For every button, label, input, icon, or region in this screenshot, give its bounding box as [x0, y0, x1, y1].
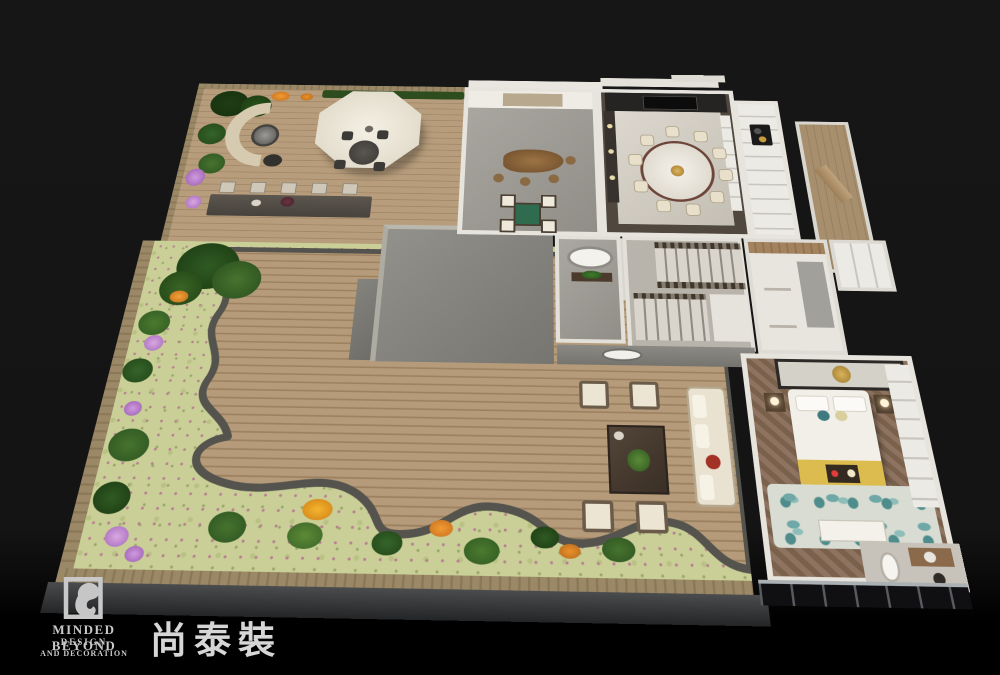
orange-flowers — [271, 91, 291, 100]
lounge-armchair — [629, 381, 660, 409]
utility-room — [829, 240, 897, 292]
roof-block — [370, 225, 554, 365]
bar-stool — [249, 182, 266, 193]
sofa-cushion — [699, 475, 715, 500]
bar-stool — [342, 183, 359, 194]
ottoman — [262, 154, 283, 167]
table-tray — [614, 431, 624, 440]
dining-chair — [693, 131, 708, 142]
bar-stool — [311, 183, 328, 194]
stair-hall — [622, 237, 756, 352]
patio-chair — [341, 131, 353, 140]
dining-room — [596, 89, 753, 239]
tv-screen — [643, 96, 699, 110]
dining-chair — [709, 191, 725, 203]
breakfast-tray — [825, 464, 860, 483]
dining-chair — [656, 200, 672, 212]
foyer-mirror — [567, 246, 614, 269]
cook-pot — [754, 128, 762, 134]
cooktop — [749, 124, 773, 145]
parapet-strip — [671, 75, 725, 83]
dining-chair — [640, 135, 655, 146]
orange-flowers — [300, 93, 314, 100]
table-centerpiece — [670, 165, 684, 176]
shrub — [602, 537, 636, 562]
tea-room — [457, 87, 602, 236]
sofa-cushion — [694, 424, 710, 448]
balcony-bench — [814, 165, 853, 203]
purple-flowers — [103, 526, 131, 547]
corridor-threshold — [748, 242, 826, 254]
sofa-cushion — [692, 395, 707, 418]
pillow — [832, 396, 868, 412]
bedside-lamp — [770, 397, 780, 405]
dining-chair — [665, 126, 680, 137]
brand-name-cn: 尚泰裝飾 — [150, 610, 322, 675]
stair-railing — [633, 293, 706, 300]
floorplan-3d — [42, 83, 965, 595]
shrub — [120, 358, 156, 383]
fern-plant — [196, 123, 228, 144]
bonsai-plant — [582, 271, 603, 279]
stair-railing — [657, 282, 746, 290]
tray-flower — [847, 469, 856, 477]
dining-chair — [633, 180, 648, 192]
stair-flight-upper — [655, 248, 745, 283]
table-plant — [627, 449, 651, 472]
sofa-pillow-red — [705, 455, 721, 470]
purple-flowers — [142, 335, 165, 351]
shrub — [531, 526, 560, 548]
lounge-armchair — [582, 500, 615, 533]
door-line — [769, 325, 797, 328]
door-line — [764, 288, 791, 291]
brand-tagline-decoration: AND DECORATION — [22, 649, 146, 658]
bar-stool — [219, 182, 237, 193]
lounge-armchair — [635, 501, 669, 534]
brand-tagline-design: DESIGN — [22, 637, 146, 647]
stair-landing — [710, 294, 753, 342]
game-chair — [541, 219, 557, 233]
tray-cup — [831, 470, 839, 477]
coffee-table — [607, 425, 670, 495]
dining-chair — [628, 154, 643, 166]
orange-flowers — [559, 544, 581, 559]
game-chair — [500, 219, 516, 233]
game-chair — [541, 195, 557, 208]
lounge-armchair — [579, 381, 609, 409]
dining-chair — [712, 148, 727, 160]
patio-chair — [334, 160, 347, 169]
cabinet-light — [608, 149, 614, 154]
patio-chair — [377, 130, 389, 139]
accent-pillow — [834, 411, 848, 422]
pillow — [795, 395, 831, 411]
dining-chair — [718, 169, 734, 181]
tea-stool — [493, 174, 504, 183]
shrub — [136, 310, 173, 335]
stair-flight-lower — [634, 299, 711, 342]
bed-bench — [818, 520, 888, 543]
patio-chair — [373, 162, 385, 171]
game-table — [513, 203, 541, 226]
shrub — [105, 428, 153, 461]
cook-pot — [758, 136, 766, 142]
root-tea-table — [503, 149, 564, 173]
bird-in-square-icon — [60, 576, 108, 620]
logo-block: MINDED BEYOND DESIGN AND DECORATION 尚泰裝飾 — [22, 576, 322, 666]
roof-terrace — [160, 84, 466, 247]
cabinet-light — [607, 124, 613, 128]
purple-flowers — [184, 195, 202, 208]
purple-flowers — [122, 401, 143, 416]
tea-stool — [565, 156, 576, 165]
game-chair — [500, 194, 516, 207]
tea-stool — [520, 177, 531, 186]
tea-stool — [549, 174, 560, 183]
cabinet-light — [609, 175, 615, 180]
dining-chair — [685, 203, 701, 216]
facade-window-band — [758, 580, 973, 610]
lounge-feature-wall — [557, 344, 757, 367]
wall-art-panel — [503, 93, 563, 107]
shrub — [89, 481, 134, 514]
accent-pillow-teal — [817, 410, 831, 421]
render-canvas: MINDED BEYOND DESIGN AND DECORATION 尚泰裝飾 — [0, 0, 1000, 675]
entry-foyer — [555, 236, 626, 344]
purple-flowers — [184, 168, 207, 186]
bar-stool — [280, 182, 297, 193]
corridor-rug — [797, 262, 835, 328]
toilet — [878, 552, 903, 582]
master-bedroom — [740, 353, 962, 586]
